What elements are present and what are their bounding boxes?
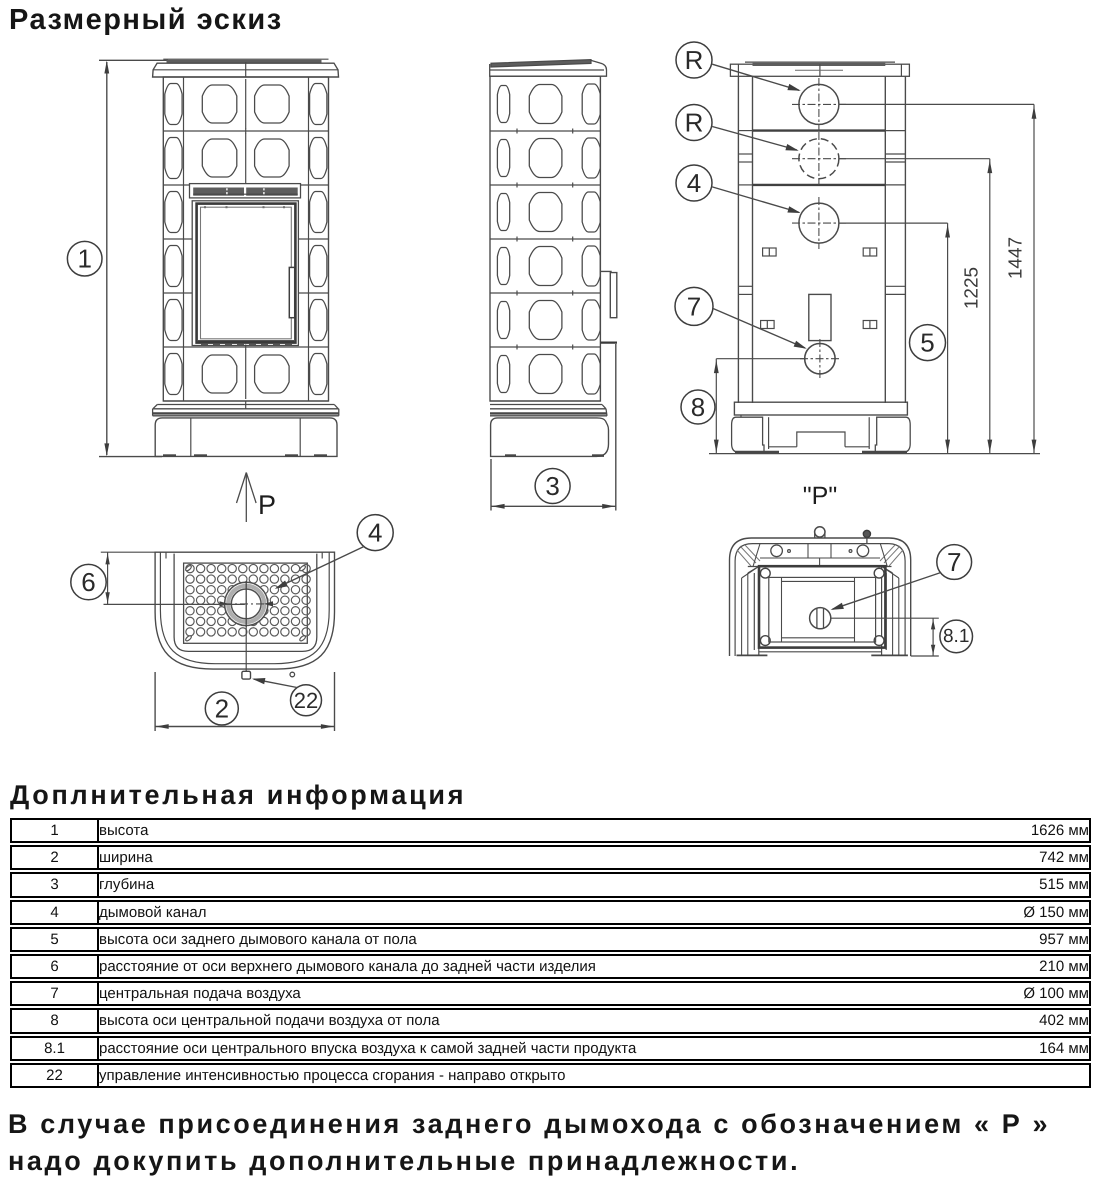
svg-text:R: R	[685, 108, 704, 138]
svg-text:R: R	[685, 45, 704, 75]
svg-text:3: 3	[545, 471, 559, 501]
svg-text:Р: Р	[258, 490, 276, 520]
svg-text:1447: 1447	[1006, 237, 1027, 279]
svg-text:8.1: 8.1	[943, 626, 969, 647]
svg-text:"Р": "Р"	[803, 482, 837, 510]
svg-text:2: 2	[215, 694, 229, 724]
svg-text:7: 7	[687, 291, 701, 321]
svg-text:7: 7	[947, 547, 961, 577]
svg-text:22: 22	[294, 688, 318, 713]
svg-text:8: 8	[691, 392, 705, 422]
svg-text:5: 5	[920, 328, 934, 358]
svg-text:4: 4	[368, 518, 382, 548]
svg-text:1: 1	[77, 244, 91, 274]
svg-text:1225: 1225	[962, 267, 983, 309]
svg-text:4: 4	[687, 168, 701, 198]
svg-text:6: 6	[81, 567, 95, 597]
